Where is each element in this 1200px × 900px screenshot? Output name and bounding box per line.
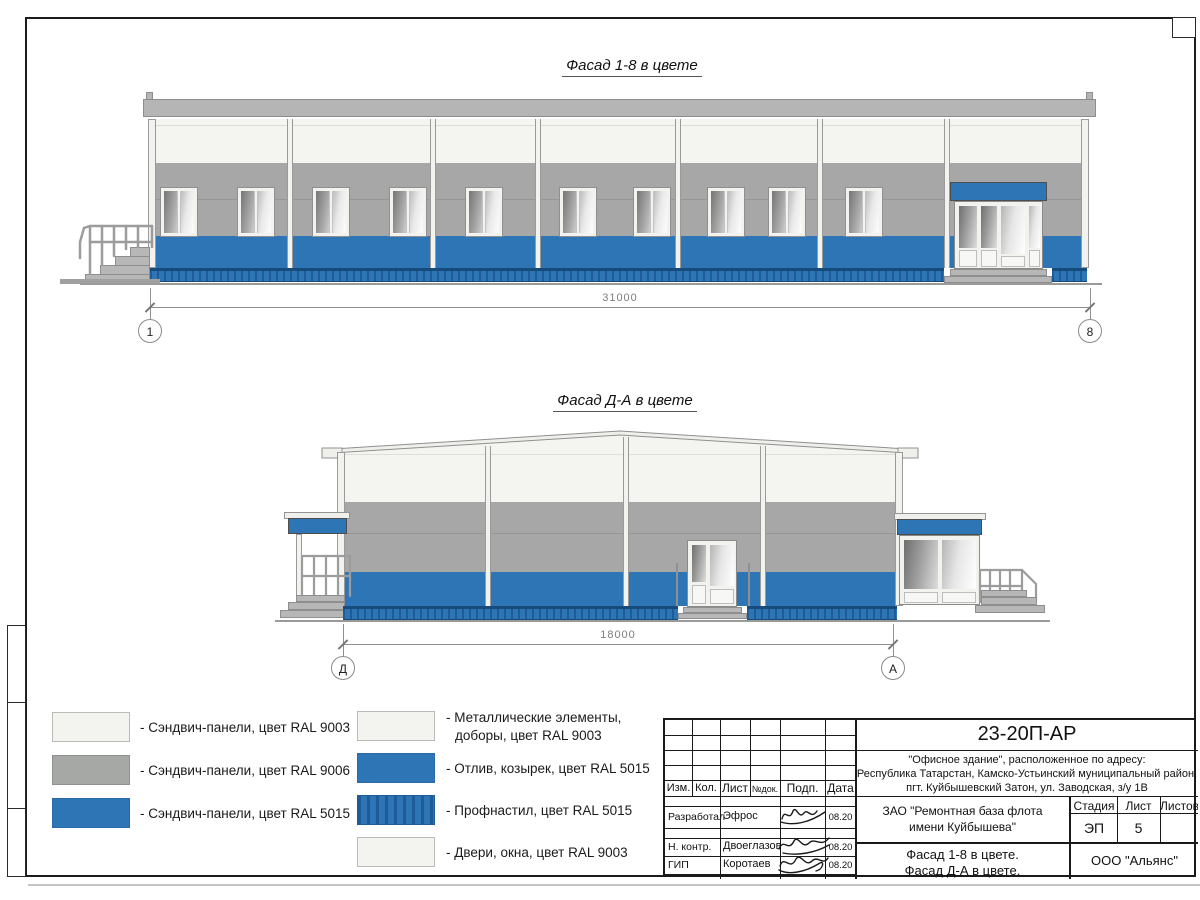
facade1-window-7 — [633, 187, 671, 237]
facade1-window-3 — [312, 187, 350, 237]
facade2-dim-text: 18000 — [518, 629, 718, 641]
legend-label-ral9003-panels: - Сэндвич-панели, цвет RAL 9003 — [140, 720, 350, 735]
facade2-axis-d: Д — [331, 656, 355, 680]
facade1-axis-8: 8 — [1078, 319, 1102, 343]
facade2-ext-line-left — [343, 624, 344, 656]
window-mullion-bar — [785, 191, 789, 233]
tambour-glass-right — [942, 540, 976, 589]
tambour-glass-left — [904, 540, 938, 589]
tb-col-data: Дата — [825, 781, 856, 795]
facade2-axis-a: А — [881, 656, 905, 680]
legend-swatch-doors — [357, 837, 435, 867]
tb-row2-role: Н. контр. — [668, 841, 711, 853]
door-sidelight-glass — [692, 545, 706, 582]
legend-swatch-profnastil — [357, 795, 435, 825]
legend-swatch-ral9003-panels — [52, 712, 130, 742]
facade1-profnastil-base-right — [1052, 268, 1087, 282]
facade2-profnastil-right — [747, 606, 897, 620]
facade1-mullion-4 — [675, 119, 681, 268]
entrance-panel-1 — [959, 250, 977, 267]
facade1-mullion-3 — [535, 119, 541, 268]
facade1-window-2 — [237, 187, 275, 237]
window-mullion-bar — [329, 191, 333, 233]
entrance-panel-2 — [981, 250, 997, 267]
window-mullion-bar — [724, 191, 728, 233]
facade1-entrance — [954, 201, 1043, 269]
facade2-tambour-step-2 — [981, 597, 1037, 605]
tb-company: ООО "Альянс" — [1071, 853, 1198, 868]
facade2-wall — [340, 455, 900, 606]
legend-label-metal-line2: доборы, цвет RAL 9003 — [455, 728, 602, 743]
tb-client-line2: имени Куйбышева" — [856, 820, 1069, 834]
tambour-panel-left — [904, 592, 938, 603]
tb-col-ndok: №док. — [750, 784, 780, 794]
facade2-door-rail-right — [748, 563, 750, 609]
tb-col-podp: Подп. — [780, 781, 825, 795]
tb-row1-name: Эфрос — [723, 810, 758, 822]
window-mullion-bar — [862, 191, 866, 233]
legend-label-otliv: - Отлив, козырек, цвет RAL 5015 — [446, 761, 650, 776]
tb-listov-label: Листов — [1160, 799, 1198, 813]
tb-list-label: Лист — [1117, 799, 1160, 813]
facade1-ground-line — [80, 283, 1102, 285]
sheet-shadow — [28, 884, 1200, 886]
facade1-stair-railing — [76, 216, 158, 286]
facade2-profnastil-left — [343, 606, 678, 620]
legend-label-doors: - Двери, окна, цвет RAL 9003 — [446, 845, 628, 860]
legend-swatch-ral5015-panels — [52, 798, 130, 828]
facade2-mullion-2 — [623, 437, 629, 606]
tb-stage-value: ЭП — [1071, 820, 1117, 836]
window-mullion-bar — [177, 191, 181, 233]
tb-address-line1: "Офисное здание", расположенное по адрес… — [856, 754, 1198, 766]
facade1-corner-post-right — [1081, 119, 1089, 268]
facade1-mullion-1 — [287, 119, 293, 268]
binding-box-2 — [7, 702, 26, 809]
tambour-panel-right — [942, 592, 976, 603]
tb-sheet-title-line2: Фасад Д-А в цвете. — [856, 863, 1069, 878]
facade1-window-10 — [845, 187, 883, 237]
entrance-glass-2 — [981, 206, 997, 248]
facade2-ext-line-right — [893, 624, 894, 656]
door-sidelight-panel — [692, 585, 706, 604]
window-mullion-bar — [482, 191, 486, 233]
facade2-door-step-2 — [678, 613, 747, 619]
facade2-mullion-1 — [485, 446, 491, 606]
door-panel — [710, 589, 734, 604]
facade1-window-6 — [559, 187, 597, 237]
signature-1 — [777, 804, 831, 828]
facade1-mullion-2 — [430, 119, 436, 268]
facade1-axis-1: 1 — [138, 319, 162, 343]
facade1-dim-line — [150, 307, 1090, 308]
tb-row3-name: Коротаев — [723, 858, 771, 870]
facade2-porch-canopy — [288, 518, 347, 534]
facade2-mullion-3 — [760, 446, 766, 606]
facade2-porch-step-2 — [288, 602, 345, 610]
facade2-band-gray — [341, 502, 899, 572]
legend-swatch-metal — [357, 711, 435, 741]
legend-label-metal-line1: - Металлические элементы, — [446, 710, 621, 725]
facade2-band-white — [341, 455, 899, 502]
entrance-door-panel — [1001, 256, 1025, 267]
tb-address-line2: Республика Татарстан, Камско-Устьинский … — [856, 768, 1198, 780]
facade1-window-4 — [389, 187, 427, 237]
tb-row1-role: Разработал — [668, 811, 725, 823]
tb-row2-name: Двоеглазов — [723, 840, 781, 852]
facade2-band-blue — [341, 572, 899, 606]
corner-stamp-box — [1172, 17, 1196, 38]
facade2-porch-step-1 — [296, 595, 345, 602]
legend-label-ral5015-panels: - Сэндвич-панели, цвет RAL 5015 — [140, 806, 350, 821]
facade1-entrance-canopy — [950, 182, 1047, 201]
facade2-porch-step-3 — [280, 610, 345, 618]
facade2-tambour-step-1 — [981, 590, 1027, 597]
binding-box-1 — [7, 625, 26, 703]
tb-row3-role: ГИП — [668, 859, 689, 871]
legend-swatch-ral9006-panels — [52, 755, 130, 785]
facade2-door — [687, 540, 737, 607]
door-glass — [710, 545, 734, 586]
facade1-window-5 — [465, 187, 503, 237]
facade1-window-9 — [768, 187, 806, 237]
entrance-glass-1 — [959, 206, 977, 248]
facade1-entrance-step-2 — [944, 276, 1052, 283]
facade1-dim-text: 31000 — [520, 292, 720, 304]
tb-doc-number: 23-20П-АР — [856, 723, 1198, 746]
facade2-title: Фасад Д-А в цвете — [445, 392, 805, 409]
tb-client-line1: ЗАО "Ремонтная база флота — [856, 804, 1069, 818]
tb-stage-label: Стадия — [1071, 799, 1117, 813]
facade2-dim-line — [343, 644, 893, 645]
tb-col-list: Лист — [720, 781, 750, 795]
facade1-window-1 — [160, 187, 198, 237]
entrance-glass-3 — [1029, 206, 1040, 248]
facade1-entrance-step-1 — [950, 269, 1047, 276]
tb-col-kol: Кол. — [692, 782, 720, 794]
facade1-window-8 — [707, 187, 745, 237]
entrance-panel-3 — [1029, 250, 1040, 267]
tb-col-izm: Изм. — [665, 782, 692, 794]
tb-address-line3: пгт. Куйбышевский Затон, ул. Заводская, … — [856, 782, 1198, 794]
legend-swatch-otliv — [357, 753, 435, 783]
tb-list-value: 5 — [1117, 820, 1160, 836]
binding-box-3 — [7, 808, 26, 877]
title-block: Изм. Кол. Лист №док. Подп. Дата Разработ… — [663, 718, 1196, 877]
facade2-door-rail-left — [676, 563, 678, 609]
entrance-door-glass — [1001, 206, 1025, 254]
window-mullion-bar — [254, 191, 258, 233]
facade2-ground-line — [275, 620, 1050, 622]
window-mullion-bar — [576, 191, 580, 233]
drawing-sheet: Фасад 1-8 в цвете — [0, 0, 1200, 900]
facade1-mullion-5 — [817, 119, 823, 268]
window-mullion-bar — [650, 191, 654, 233]
facade2-joint-gray — [341, 533, 899, 534]
facade1-profnastil-base — [150, 268, 944, 282]
legend-label-ral9006-panels: - Сэндвич-панели, цвет RAL 9006 — [140, 763, 350, 778]
facade1-title: Фасад 1-8 в цвете — [452, 57, 812, 74]
facade2-tambour-canopy — [897, 519, 982, 535]
signature-3 — [774, 850, 832, 876]
window-mullion-bar — [406, 191, 410, 233]
legend-label-profnastil: - Профнастил, цвет RAL 5015 — [446, 803, 632, 818]
facade1-roof-cap — [143, 99, 1096, 117]
facade2-tambour — [899, 535, 980, 605]
tb-sheet-title-line1: Фасад 1-8 в цвете. — [856, 847, 1069, 862]
facade2-tambour-step-3 — [975, 605, 1045, 613]
